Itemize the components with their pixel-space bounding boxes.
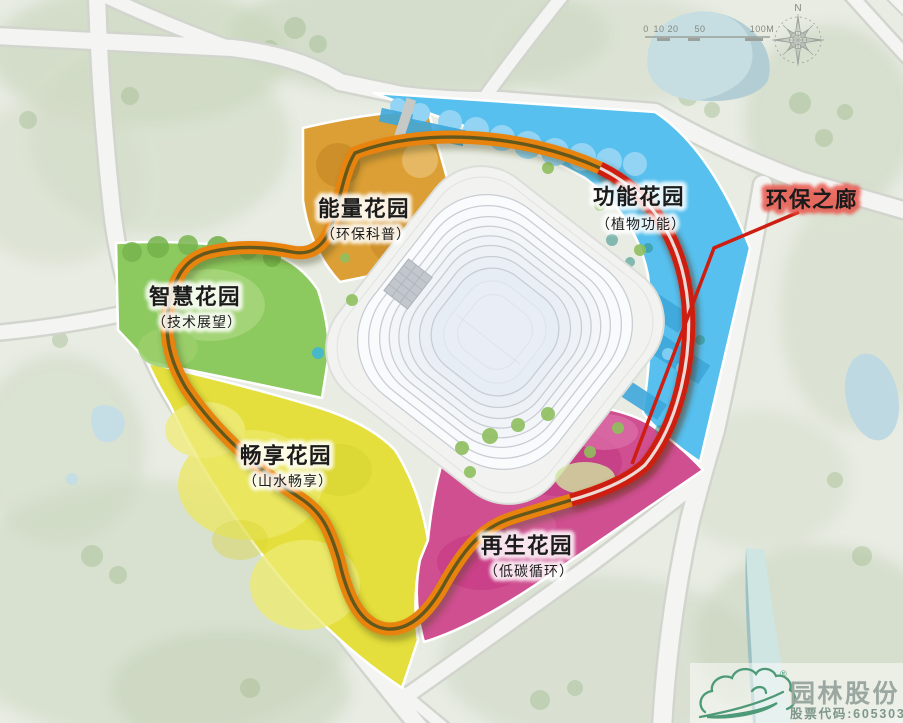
label-text: 智慧花园 xyxy=(149,284,241,309)
label-text: 畅享花园 xyxy=(240,443,332,468)
plaza-pool xyxy=(312,347,324,359)
scale-tick-50: 50 xyxy=(694,24,705,34)
master-plan-canvas: 能量花园 能量花园 （环保科普） （环保科普） 智慧花园 智慧花园 （技术展望）… xyxy=(0,0,903,723)
scale-tick-0: 0 xyxy=(643,24,649,34)
company-name: 园林股份 xyxy=(790,680,900,708)
label-subtext: （植物功能） xyxy=(596,216,686,232)
scale-tick-10: 10 xyxy=(653,24,664,34)
label-subtext: （山水畅享） xyxy=(243,473,333,489)
stock-code: 股票代码:605303 xyxy=(790,706,903,721)
scale-tick-100m: 100M xyxy=(750,24,775,34)
label-subtext: （技术展望） xyxy=(152,314,242,330)
corridor-label: 环保之廊 环保之廊 xyxy=(766,187,858,212)
garden-label-enjoy: 畅享花园 畅享花园 （山水畅享） （山水畅享） xyxy=(240,443,333,489)
garden-label-regeneration: 再生花园 再生花园 （低碳循环） （低碳循环） xyxy=(481,533,574,579)
label-text: 环保之廊 xyxy=(766,187,858,212)
scale-tick-20: 20 xyxy=(667,24,678,34)
label-text: 再生花园 xyxy=(481,533,573,558)
garden-label-function: 功能花园 功能花园 （植物功能） （植物功能） xyxy=(593,184,686,232)
site-plan-svg: 能量花园 能量花园 （环保科普） （环保科普） 智慧花园 智慧花园 （技术展望）… xyxy=(0,0,903,723)
label-subtext: （环保科普） xyxy=(321,226,411,242)
label-text: 功能花园 xyxy=(593,184,685,209)
north-label: N xyxy=(794,3,801,14)
company-logo: ® 园林股份 股票代码:605303 xyxy=(690,663,903,723)
garden-label-wisdom: 智慧花园 智慧花园 （技术展望） （技术展望） xyxy=(149,284,242,330)
label-text: 能量花园 xyxy=(318,196,410,221)
label-subtext: （低碳循环） xyxy=(484,563,574,579)
registered-mark: ® xyxy=(780,669,787,679)
garden-label-energy: 能量花园 能量花园 （环保科普） （环保科普） xyxy=(318,196,411,242)
